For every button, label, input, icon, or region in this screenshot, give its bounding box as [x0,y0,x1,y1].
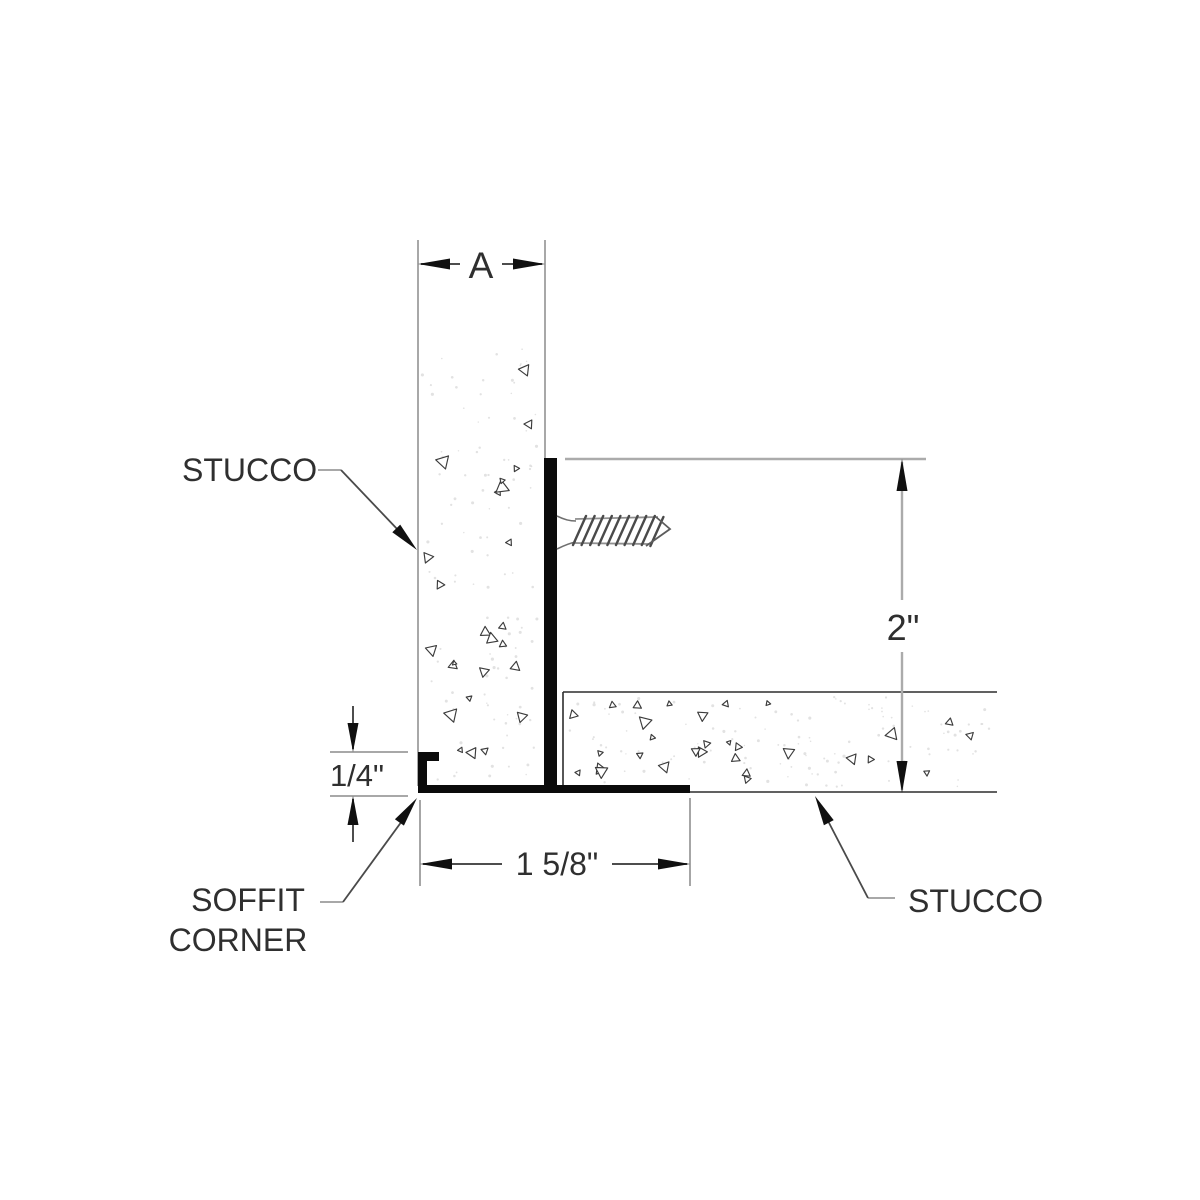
dim-A-arrow-left [418,259,450,270]
dim-14-arrow-down [348,723,359,752]
dimension-A: A [418,245,545,286]
stucco-left-leader-diagonal [341,470,399,531]
dim-A-text: A [469,245,494,286]
screw-neck-top [557,516,576,521]
dim-158-arrow-right [658,859,690,870]
stucco-soffit-section [563,692,997,792]
soffit-corner-leader-diagonal [343,821,402,902]
callout-stucco-right: STUCCO [815,796,1043,919]
stucco-right-leader-arrow [815,796,834,825]
corner-profile [418,458,690,793]
stucco-left-label: STUCCO [182,452,317,488]
stucco-right-leader-diagonal [827,819,868,898]
drawing-canvas: A 2" 1 5/8" 1/4" STUCCO SOFFIT [0,0,1200,1200]
dim-158-arrow-left [420,859,452,870]
dim-2in-text: 2" [887,607,920,648]
profile-bottom-flange [418,785,690,793]
screw-rail-bottom [573,543,649,544]
profile-lip-cap [418,752,439,761]
stucco-texture-soffit [569,696,991,788]
dimension-1-5-8in: 1 5/8" [420,798,690,886]
stucco-right-label: STUCCO [908,883,1043,919]
dim-14-text: 1/4" [330,758,384,793]
dim-A-arrow-right [513,259,545,270]
callout-soffit-corner: SOFFIT CORNER [169,798,417,958]
dim-14-arrow-up [348,796,359,825]
screw-threads [573,516,663,546]
stucco-wall-section [418,240,545,786]
dim-2in-arrow-bottom [897,761,908,793]
callout-stucco-left: STUCCO [182,452,417,550]
dim-158-text: 1 5/8" [516,846,599,882]
profile-vertical-leg [544,458,557,793]
dim-2in-arrow-top [897,459,908,491]
soffit-corner-detail-drawing: A 2" 1 5/8" 1/4" STUCCO SOFFIT [0,0,1200,1200]
dimension-1-4in: 1/4" [330,706,408,842]
screw-icon [557,516,670,549]
soffit-corner-label-line2: CORNER [169,922,308,958]
dimension-2in: 2" [565,459,926,793]
soffit-corner-leader-arrow [395,798,417,826]
stucco-texture-wall [421,348,539,780]
soffit-corner-label-line1: SOFFIT [191,882,305,918]
